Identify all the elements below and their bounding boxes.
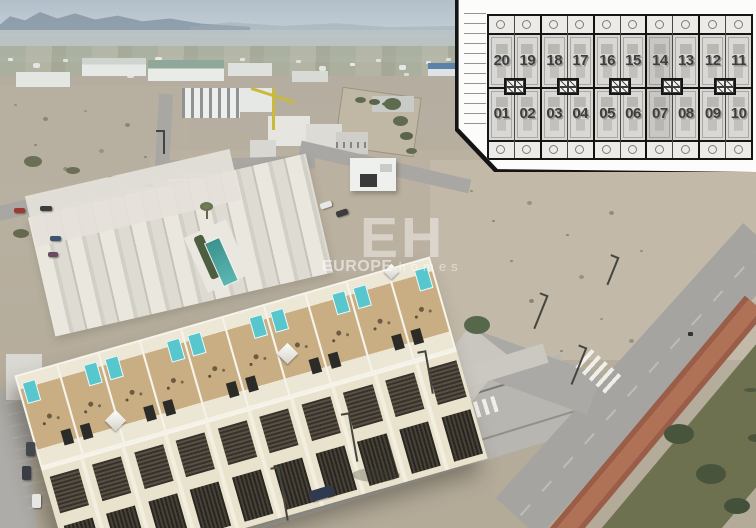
palm-tree (200, 202, 213, 211)
ground-terrace-cell (568, 142, 593, 158)
brand-name-bold: EUROPE (322, 258, 393, 275)
unit-cell: 03 (542, 89, 567, 143)
distant-town (8, 58, 13, 61)
patio-table-icon (602, 20, 611, 29)
brand-monogram: EH (360, 212, 445, 264)
stair-bulkhead (391, 334, 405, 351)
stair-bulkhead (411, 328, 425, 345)
scrub-vegetation (14, 104, 17, 106)
rooftop-pool (22, 379, 41, 404)
unit-cell: 01 (489, 89, 514, 143)
construction-block (250, 140, 276, 158)
warehouse (16, 72, 70, 87)
roof-terrace-cell (515, 16, 540, 35)
stair-bulkhead (163, 399, 177, 416)
unit-number: 09 (705, 105, 721, 122)
patio-table-icon (708, 145, 717, 154)
ground-terrace-cell (515, 142, 540, 158)
rooftop-pool (353, 284, 372, 309)
unit-number: 20 (494, 52, 510, 69)
stair-bulkhead (328, 352, 342, 369)
unit-number: 02 (520, 105, 536, 122)
unit-cell: 02 (515, 89, 540, 143)
patio-table-icon (522, 20, 531, 29)
parked-car (40, 206, 52, 211)
roof-terrace-cell (568, 16, 593, 35)
unit-cell: 10 (726, 89, 751, 143)
rooftop-pool (187, 332, 206, 357)
patio-table-icon (655, 145, 664, 154)
patio-table-icon (628, 20, 637, 29)
unit-number: 11 (731, 52, 746, 69)
patio-table-icon (708, 20, 717, 29)
rooftop-pool (105, 356, 124, 381)
roof-terrace-cell (647, 16, 672, 35)
unit-number: 01 (494, 105, 510, 122)
roof-terrace-cell (595, 16, 620, 35)
unit-cell: 04 (568, 89, 593, 143)
patio-table-icon (496, 20, 505, 29)
unit-cell: 06 (621, 89, 646, 143)
stairs-icon (714, 78, 736, 95)
rooftop-pool (248, 314, 267, 339)
real-estate-aerial-composite: EH EUROPEhomes 2001190218031704160515061… (0, 0, 756, 528)
stair-bulkhead (143, 405, 157, 422)
unit-number: 16 (599, 52, 615, 69)
parked-car (22, 466, 31, 480)
roof-terrace-cell (673, 16, 698, 35)
unit-number: 08 (678, 105, 694, 122)
patio-table-icon (575, 20, 584, 29)
unit-number: 15 (625, 52, 641, 69)
patio-table-icon (681, 20, 690, 29)
patio-table-icon (681, 145, 690, 154)
stair-bulkhead (61, 429, 75, 446)
apartment-row (182, 88, 240, 118)
patio-table-icon (549, 20, 558, 29)
stairs-icon (609, 78, 631, 95)
patio-table-icon (734, 145, 743, 154)
stair-bulkhead (226, 381, 240, 398)
ground-terrace-cell (542, 142, 567, 158)
warehouse (292, 71, 328, 82)
unit-cell: 07 (647, 89, 672, 143)
stairs-icon (661, 78, 683, 95)
patio-table-icon (549, 145, 558, 154)
ground-terrace-cell (700, 142, 725, 158)
stair-bulkhead (80, 423, 94, 440)
roof-terrace-cell (700, 16, 725, 35)
unit-number: 17 (572, 52, 588, 69)
parked-car (26, 442, 35, 456)
ground-terrace-cell (647, 142, 672, 158)
unit-number: 05 (599, 105, 615, 122)
patio-table-icon (655, 20, 664, 29)
site-plan-inset: 2001190218031704160515061407130812091110 (455, 0, 756, 172)
patio-table-icon (602, 145, 611, 154)
patio-table-icon (522, 145, 531, 154)
ground-terrace-cell (595, 142, 620, 158)
patio-table-icon (734, 20, 743, 29)
roof-terrace-cell (726, 16, 751, 35)
ground-terrace-cell (489, 142, 514, 158)
roof-terrace-cell (542, 16, 567, 35)
warehouse (228, 63, 272, 76)
scrub-vegetation (470, 190, 473, 192)
verge-trees (664, 424, 694, 444)
plan-unit-grid: 2001190218031704160515061407130812091110 (487, 14, 753, 160)
unit-number: 03 (546, 105, 562, 122)
tree-shadow (352, 468, 400, 482)
stairs-icon (504, 78, 526, 95)
unit-number: 04 (572, 105, 588, 122)
unit-number: 14 (652, 52, 668, 69)
patio-table-icon (628, 145, 637, 154)
ground-terrace-cell (621, 142, 646, 158)
rooftop-pool (83, 362, 102, 387)
plan-access-road (464, 4, 486, 130)
roof-terrace-cell (489, 16, 514, 35)
stair-bulkhead (245, 376, 259, 393)
unit-number: 13 (678, 52, 694, 69)
garage-door (360, 174, 377, 187)
ground-terrace-cell (726, 142, 751, 158)
stair-bulkhead (309, 358, 323, 375)
rooftop-pool (166, 338, 185, 363)
unit-number: 18 (546, 52, 562, 69)
brand-name-light: homes (399, 259, 463, 274)
roof-terrace-cell (621, 16, 646, 35)
parked-car (48, 252, 58, 257)
motorbike (688, 332, 693, 336)
parked-car (14, 208, 25, 213)
warehouse-green-roof (148, 60, 224, 81)
lot-trees (384, 98, 401, 110)
unit-number: 07 (652, 105, 668, 122)
unit-number: 06 (625, 105, 641, 122)
field-trees (24, 156, 42, 167)
brand-name: EUROPEhomes (322, 258, 463, 276)
plaza-tree (464, 316, 490, 334)
unit-number: 10 (731, 105, 747, 122)
parked-car (32, 494, 41, 508)
stairs-icon (557, 78, 579, 95)
brand-watermark: EH EUROPEhomes (322, 212, 482, 272)
unit-number: 12 (705, 52, 721, 69)
unit-cell: 09 (700, 89, 725, 143)
patio-table-icon (496, 145, 505, 154)
modern-villa (350, 158, 396, 191)
patio-table-icon (575, 145, 584, 154)
roof-terrace (380, 164, 392, 172)
site-plan-panel: 2001190218031704160515061407130812091110 (455, 0, 756, 172)
parked-car (50, 236, 61, 241)
unit-number: 19 (520, 52, 536, 69)
streetlight (163, 130, 165, 154)
warehouse (82, 58, 146, 76)
unit-cell: 08 (673, 89, 698, 143)
balcony-window (427, 360, 466, 405)
unit-cell: 05 (595, 89, 620, 143)
rooftop-pool (270, 308, 289, 333)
rooftop-pool (331, 291, 350, 316)
ground-terrace-cell (673, 142, 698, 158)
